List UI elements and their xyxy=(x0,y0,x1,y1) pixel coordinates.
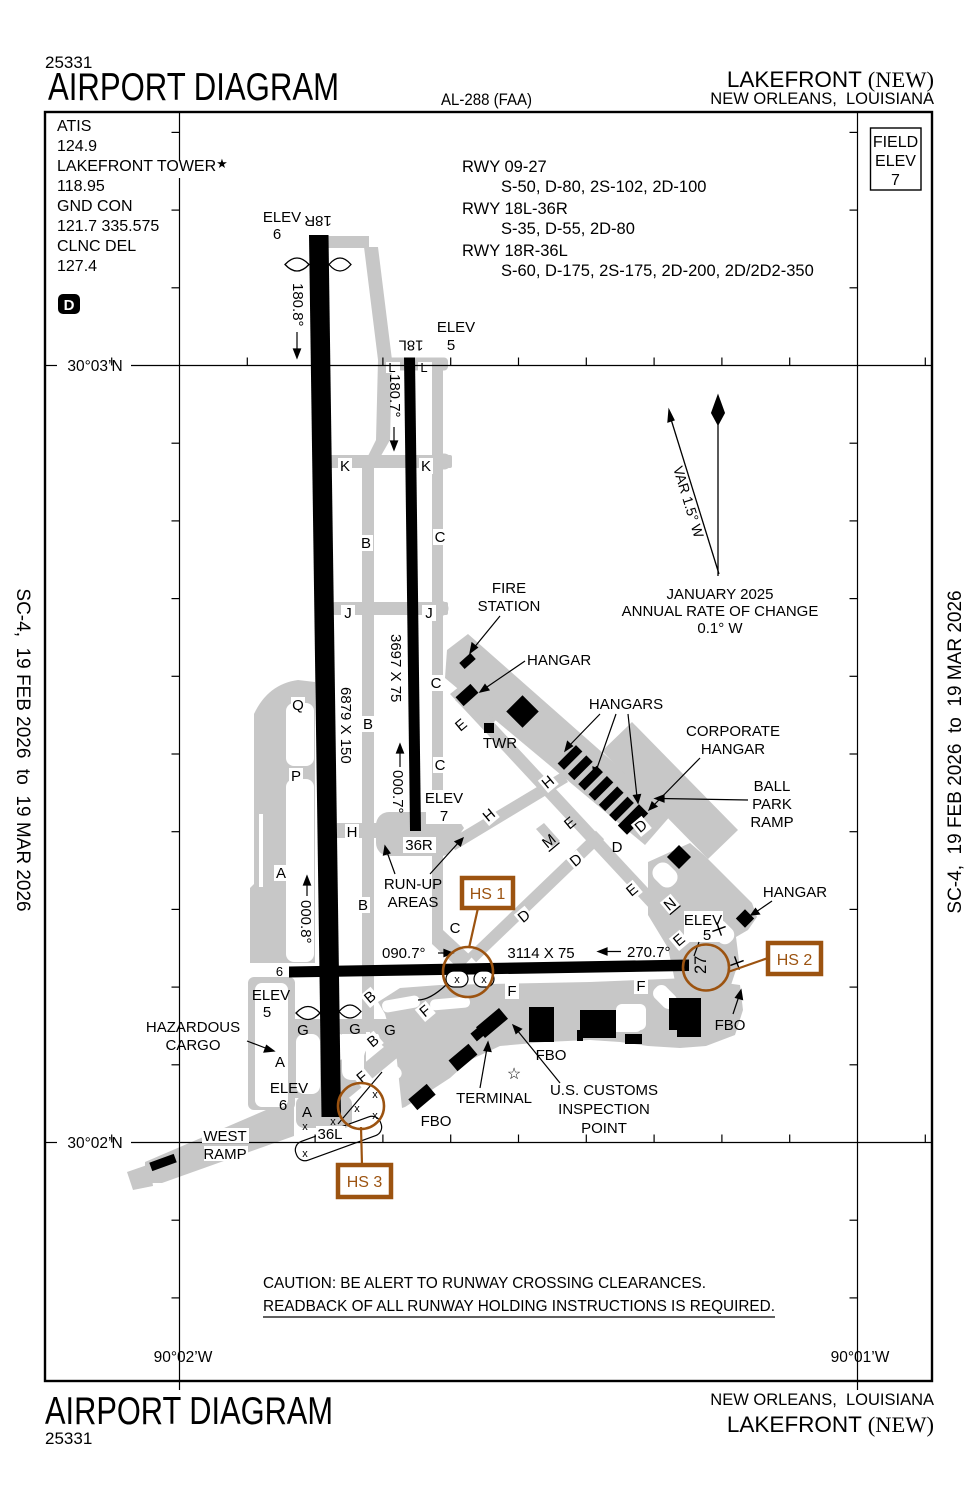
svg-text:CARGO: CARGO xyxy=(165,1037,220,1054)
svg-text:D: D xyxy=(64,297,75,314)
svg-text:x: x xyxy=(330,1116,336,1128)
svg-text:J: J xyxy=(425,605,433,622)
svg-text:270.7°: 270.7° xyxy=(627,944,671,961)
svg-text:F: F xyxy=(507,983,516,1000)
svg-text:☆: ☆ xyxy=(507,1066,521,1083)
svg-text:0.1° W: 0.1° W xyxy=(697,620,743,637)
svg-text:x: x xyxy=(372,1110,378,1122)
svg-text:121.7 335.575: 121.7 335.575 xyxy=(57,218,159,235)
svg-text:J: J xyxy=(344,605,352,622)
svg-text:PARK: PARK xyxy=(752,796,792,813)
svg-text:READBACK OF ALL RUNWAY HOLDIN: READBACK OF ALL RUNWAY HOLDING INSTRUCTI… xyxy=(263,1298,775,1315)
svg-text:7: 7 xyxy=(440,808,448,825)
svg-text:U.S. CUSTOMS: U.S. CUSTOMS xyxy=(550,1082,658,1099)
svg-text:000.8°: 000.8° xyxy=(297,900,314,944)
svg-text:NEW ORLEANS, LOUISIANA: NEW ORLEANS, LOUISIANA xyxy=(710,1391,934,1409)
svg-text:G: G xyxy=(297,1022,309,1039)
svg-text:90°02’W: 90°02’W xyxy=(154,1349,213,1366)
svg-text:CORPORATE: CORPORATE xyxy=(686,723,780,740)
svg-text:27: 27 xyxy=(692,956,710,974)
svg-text:FBO: FBO xyxy=(536,1047,567,1064)
svg-text:90°01’W: 90°01’W xyxy=(831,1349,890,1366)
svg-text:SC-4, 19 FEB 2026 to 19 MAR: SC-4, 19 FEB 2026 to 19 MAR 2026 xyxy=(12,588,33,911)
svg-text:HANGARS: HANGARS xyxy=(589,696,663,713)
svg-text:6: 6 xyxy=(279,1097,287,1114)
svg-text:L: L xyxy=(420,360,427,375)
svg-text:B: B xyxy=(361,535,371,552)
svg-text:S-50, D-80, 2S-102, 2D-100: S-50, D-80, 2S-102, 2D-100 xyxy=(501,178,706,196)
svg-text:G: G xyxy=(349,1021,361,1038)
svg-text:FIELD: FIELD xyxy=(873,134,918,151)
svg-text:FBO: FBO xyxy=(715,1017,746,1034)
svg-text:5: 5 xyxy=(263,1004,271,1021)
svg-text:9: 9 xyxy=(276,964,283,979)
svg-text:C: C xyxy=(435,757,446,774)
svg-text:ELEV: ELEV xyxy=(425,790,463,807)
svg-text:LAKEFRONT TOWER★: LAKEFRONT TOWER★ xyxy=(57,156,228,175)
svg-text:H: H xyxy=(347,824,358,841)
svg-text:AL-288 (FAA): AL-288 (FAA) xyxy=(441,91,532,109)
svg-text:x: x xyxy=(302,1121,308,1133)
svg-text:L: L xyxy=(388,360,395,375)
svg-text:RUN-UP: RUN-UP xyxy=(384,876,442,893)
svg-text:S-60, D-175, 2S-175, 2D-200, 2: S-60, D-175, 2S-175, 2D-200, 2D/2D2-350 xyxy=(501,262,814,280)
svg-text:AIRPORT DIAGRAM: AIRPORT DIAGRAM xyxy=(45,1390,333,1433)
svg-text:RWY 18L-36R: RWY 18L-36R xyxy=(462,200,568,218)
svg-text:HS 2: HS 2 xyxy=(777,952,813,969)
svg-text:ELEV: ELEV xyxy=(263,209,301,226)
svg-text:30°03’N: 30°03’N xyxy=(67,358,122,375)
svg-text:3114 X 75: 3114 X 75 xyxy=(507,945,574,962)
svg-text:HANGAR: HANGAR xyxy=(763,884,827,901)
svg-text:118.95: 118.95 xyxy=(57,178,105,195)
svg-text:ELEV: ELEV xyxy=(875,153,916,170)
svg-text:HAZARDOUS: HAZARDOUS xyxy=(146,1019,240,1036)
svg-text:ELEV: ELEV xyxy=(437,319,475,336)
svg-text:180.8°: 180.8° xyxy=(289,283,306,327)
svg-text:POINT: POINT xyxy=(581,1120,627,1137)
svg-text:090.7°: 090.7° xyxy=(382,945,426,962)
svg-text:GND CON: GND CON xyxy=(57,198,133,215)
svg-text:ELEV: ELEV xyxy=(270,1080,308,1097)
svg-text:A: A xyxy=(302,1104,312,1121)
svg-text:A: A xyxy=(276,865,286,882)
svg-text:36L: 36L xyxy=(317,1126,342,1143)
svg-text:K: K xyxy=(340,458,350,475)
svg-text:25331: 25331 xyxy=(45,1429,92,1448)
svg-text:RWY 09-27: RWY 09-27 xyxy=(462,158,547,176)
svg-text:127.4: 127.4 xyxy=(57,258,97,275)
svg-text:CLNC DEL: CLNC DEL xyxy=(57,238,136,255)
svg-text:P: P xyxy=(291,768,301,785)
svg-text:INSPECTION: INSPECTION xyxy=(558,1101,650,1118)
svg-text:HS 1: HS 1 xyxy=(470,886,506,903)
svg-text:x: x xyxy=(454,974,460,986)
svg-text:TWR: TWR xyxy=(483,735,517,752)
svg-text:B: B xyxy=(358,897,368,914)
svg-text:C: C xyxy=(431,675,442,692)
svg-text:D: D xyxy=(612,839,623,856)
svg-text:RAMP: RAMP xyxy=(750,814,793,831)
svg-text:30°02’N: 30°02’N xyxy=(67,1135,122,1152)
svg-text:6: 6 xyxy=(273,226,281,243)
svg-text:G: G xyxy=(384,1022,396,1039)
svg-text:124.9: 124.9 xyxy=(57,138,97,155)
svg-text:TERMINAL: TERMINAL xyxy=(456,1090,532,1107)
svg-text:3697 X 75: 3697 X 75 xyxy=(387,634,404,702)
svg-text:ELEV: ELEV xyxy=(252,987,290,1004)
svg-text:A: A xyxy=(275,1054,285,1071)
svg-text:SC-4, 19 FEB 2026 to 19 MAR: SC-4, 19 FEB 2026 to 19 MAR 2026 xyxy=(945,590,966,913)
svg-text:HANGAR: HANGAR xyxy=(527,652,591,669)
svg-text:7: 7 xyxy=(891,172,900,189)
svg-text:NEW ORLEANS, LOUISIANA: NEW ORLEANS, LOUISIANA xyxy=(710,90,934,108)
svg-text:JANUARY 2025: JANUARY 2025 xyxy=(666,586,773,603)
svg-text:CAUTION: BE ALERT TO RUNWAY CR: CAUTION: BE ALERT TO RUNWAY CROSSING CLE… xyxy=(263,1275,706,1292)
svg-text:LAKEFRONT (NEW): LAKEFRONT (NEW) xyxy=(727,1412,934,1437)
svg-text:x: x xyxy=(481,974,487,986)
svg-text:x: x xyxy=(354,1103,360,1115)
svg-text:FBO: FBO xyxy=(421,1113,452,1130)
svg-text:K: K xyxy=(421,458,431,475)
svg-text:x: x xyxy=(302,1148,308,1160)
svg-text:18R: 18R xyxy=(304,212,332,229)
svg-text:RWY 18R-36L: RWY 18R-36L xyxy=(462,242,568,260)
svg-text:B: B xyxy=(363,716,373,733)
svg-text:ANNUAL RATE OF CHANGE: ANNUAL RATE OF CHANGE xyxy=(622,603,819,620)
svg-text:5: 5 xyxy=(447,337,455,354)
svg-text:36R: 36R xyxy=(405,837,433,854)
svg-text:180.7°: 180.7° xyxy=(386,374,403,418)
svg-text:WEST: WEST xyxy=(203,1128,246,1145)
svg-text:HANGAR: HANGAR xyxy=(701,741,765,758)
svg-text:C: C xyxy=(435,529,446,546)
svg-text:RAMP: RAMP xyxy=(203,1146,246,1163)
svg-text:AREAS: AREAS xyxy=(388,894,439,911)
svg-text:S-35, D-55, 2D-80: S-35, D-55, 2D-80 xyxy=(501,220,635,238)
svg-text:LAKEFRONT (NEW): LAKEFRONT (NEW) xyxy=(727,67,934,92)
svg-text:F: F xyxy=(636,978,645,995)
svg-text:STATION: STATION xyxy=(478,598,541,615)
svg-text:HS 3: HS 3 xyxy=(347,1174,383,1191)
svg-text:ATIS: ATIS xyxy=(57,118,91,135)
svg-text:BALL: BALL xyxy=(754,778,791,795)
svg-text:C: C xyxy=(450,920,461,937)
svg-text:FIRE: FIRE xyxy=(492,580,526,597)
svg-text:AIRPORT DIAGRAM: AIRPORT DIAGRAM xyxy=(48,66,339,109)
svg-text:18L: 18L xyxy=(398,337,423,354)
svg-text:000.7°: 000.7° xyxy=(389,770,406,814)
svg-text:6879 X 150: 6879 X 150 xyxy=(337,687,354,764)
svg-text:5: 5 xyxy=(703,927,711,944)
svg-text:Q: Q xyxy=(292,697,304,714)
